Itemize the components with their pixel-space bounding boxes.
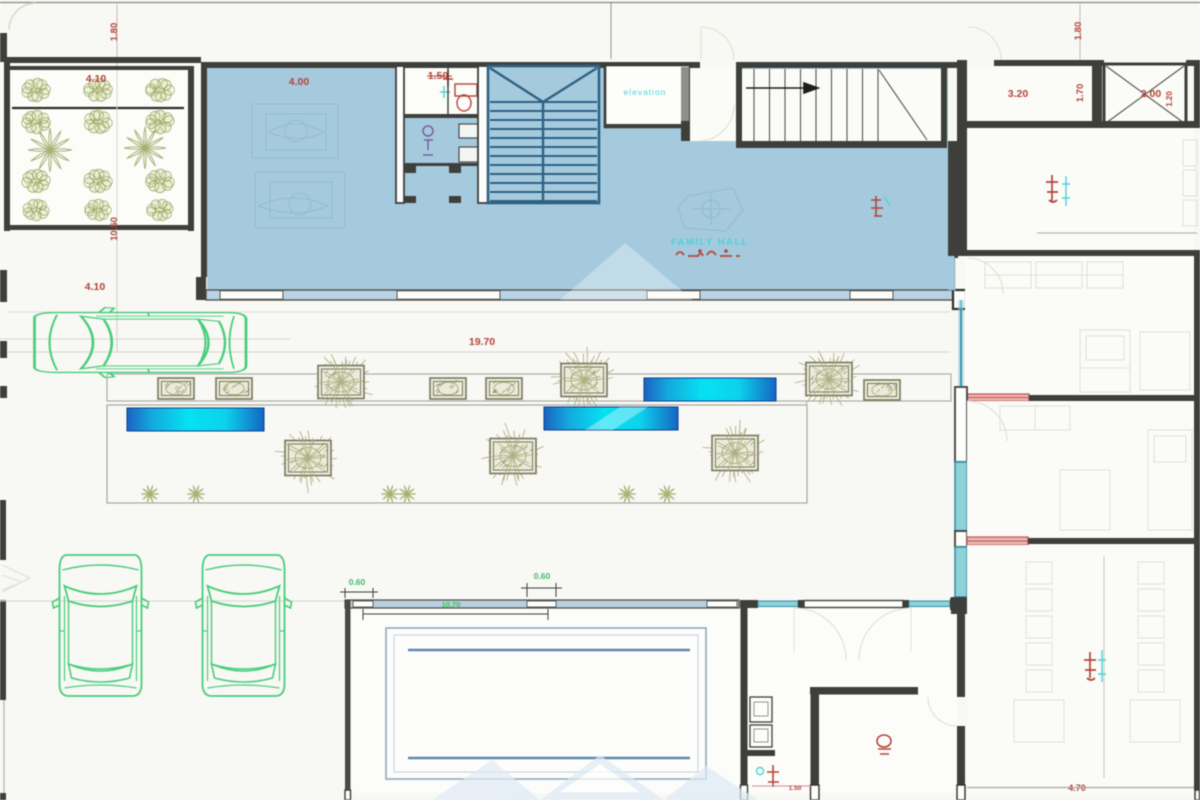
svg-text:1.80: 1.80 <box>109 23 120 42</box>
svg-text:10.70: 10.70 <box>442 600 461 609</box>
svg-text:0.60: 0.60 <box>534 571 551 581</box>
svg-text:4.10: 4.10 <box>86 73 107 85</box>
svg-text:10.50: 10.50 <box>109 217 120 241</box>
svg-text:19.70: 19.70 <box>469 336 495 348</box>
svg-text:1.20: 1.20 <box>1165 91 1174 107</box>
svg-text:3.20: 3.20 <box>1008 88 1029 100</box>
svg-text:1.50: 1.50 <box>789 785 802 792</box>
svg-text:0.60: 0.60 <box>349 577 366 587</box>
svg-text:FAMILY HALL: FAMILY HALL <box>671 237 749 248</box>
svg-text:elevation: elevation <box>623 87 666 97</box>
svg-text:1.70: 1.70 <box>1075 84 1086 103</box>
svg-text:4.00: 4.00 <box>289 76 310 88</box>
svg-text:2.00: 2.00 <box>1141 88 1162 100</box>
svg-text:4.10: 4.10 <box>85 281 106 293</box>
svg-text:1.80: 1.80 <box>1073 22 1084 41</box>
